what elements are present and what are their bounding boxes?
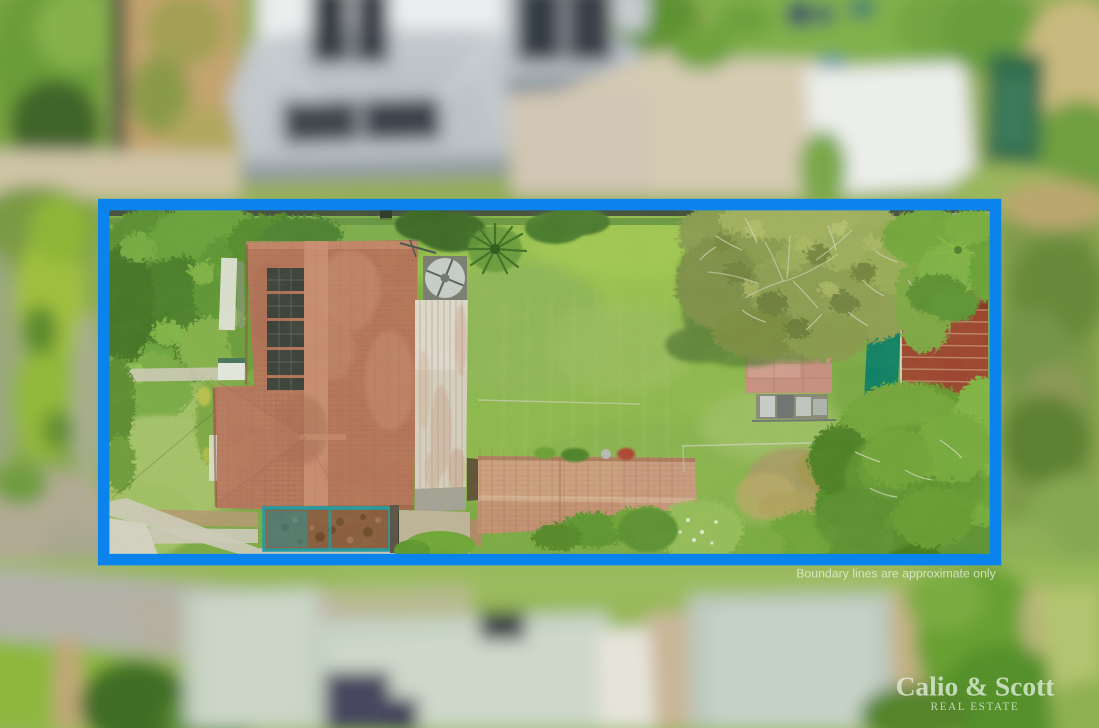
svg-text:Boundary lines are approximate: Boundary lines are approximate only bbox=[796, 567, 996, 581]
svg-text:Calio & Scott: Calio & Scott bbox=[896, 671, 1056, 702]
svg-text:REAL ESTATE: REAL ESTATE bbox=[931, 701, 1020, 713]
